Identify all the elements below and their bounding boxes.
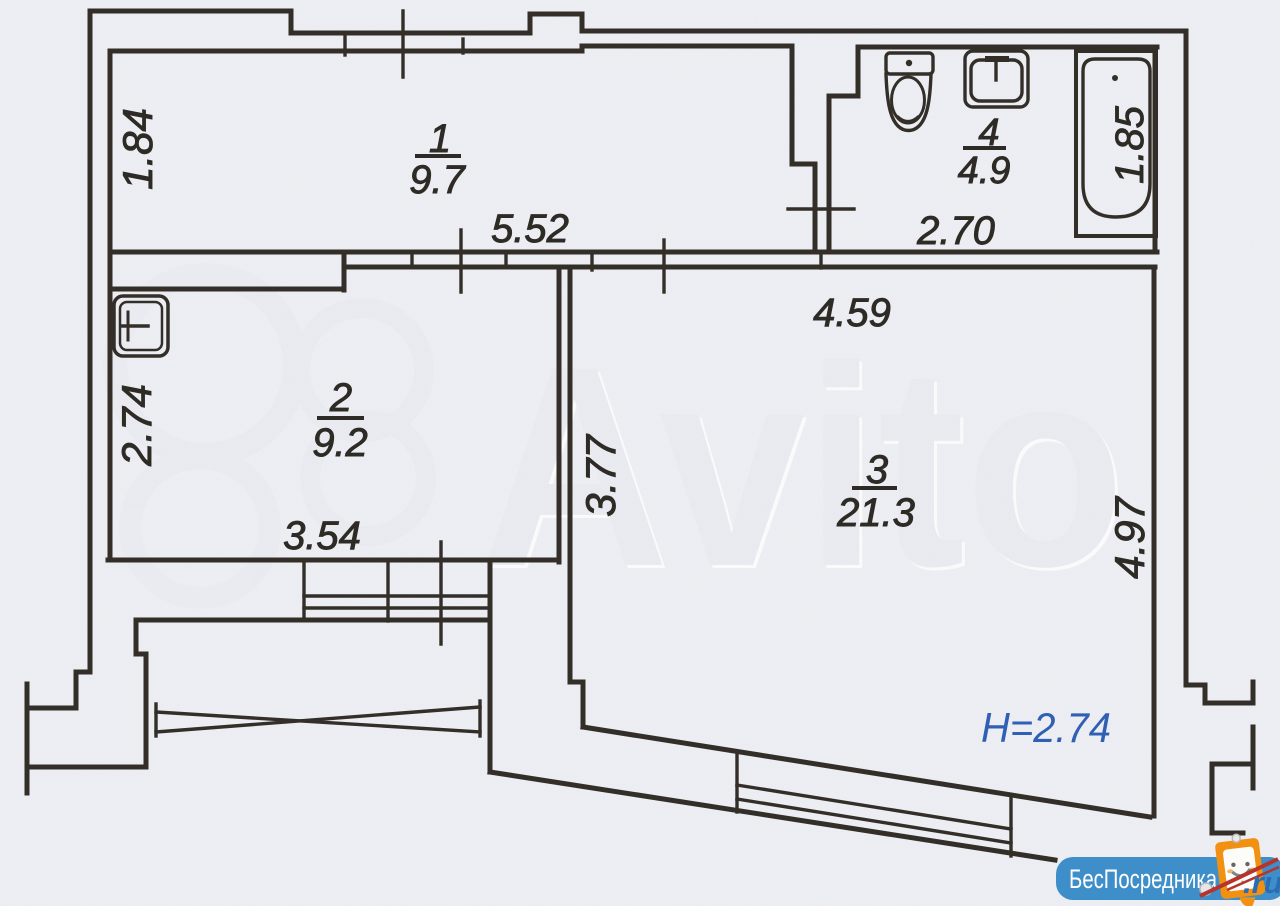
- svg-text:4.97: 4.97: [1106, 495, 1153, 578]
- svg-text:H=2.74: H=2.74: [981, 704, 1111, 751]
- svg-text:3: 3: [866, 448, 888, 492]
- svg-text:2.70: 2.70: [916, 209, 995, 253]
- svg-text:2: 2: [329, 376, 352, 420]
- svg-text:9.7: 9.7: [409, 158, 466, 202]
- svg-text:4.9: 4.9: [958, 150, 1011, 192]
- svg-text:5.52: 5.52: [491, 207, 569, 251]
- svg-text:21.3: 21.3: [836, 491, 915, 535]
- svg-text:2.74: 2.74: [113, 384, 160, 467]
- svg-text:1.84: 1.84: [114, 108, 161, 190]
- svg-text:БесПосредника: БесПосредника: [1069, 864, 1218, 894]
- svg-text:4.59: 4.59: [813, 291, 891, 335]
- svg-text:3.77: 3.77: [577, 433, 624, 516]
- svg-text:3.54: 3.54: [283, 514, 361, 558]
- svg-text:9.2: 9.2: [312, 421, 368, 465]
- svg-text:.ru: .ru: [1243, 865, 1280, 900]
- svg-text:1.85: 1.85: [1108, 105, 1152, 184]
